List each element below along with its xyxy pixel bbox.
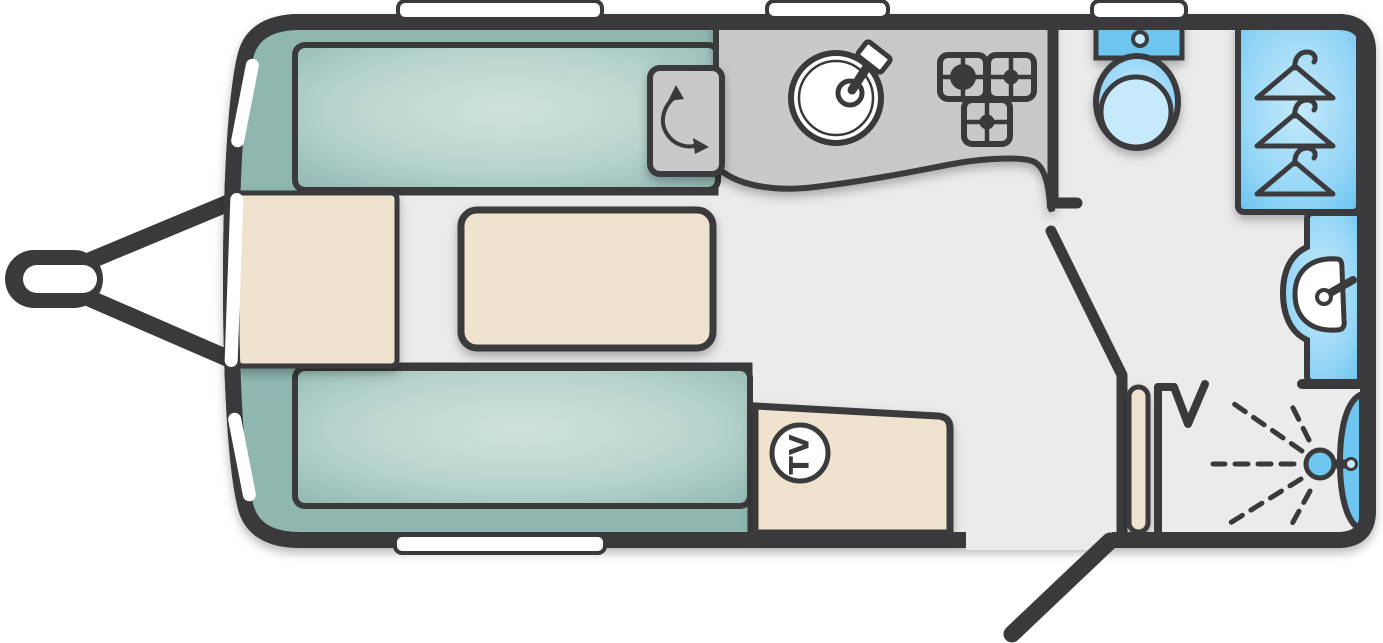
hitch-coupling-slot bbox=[23, 265, 97, 293]
window bbox=[395, 535, 605, 553]
entrance-door bbox=[945, 530, 1112, 634]
front-chest bbox=[237, 193, 397, 366]
worktop-flap bbox=[650, 68, 722, 174]
doorway-opening bbox=[966, 530, 1112, 550]
occasional-table bbox=[461, 210, 713, 348]
tow-hitch bbox=[5, 194, 250, 368]
shower-head bbox=[1306, 450, 1334, 478]
window bbox=[767, 1, 888, 18]
tv-cabinet: TV bbox=[755, 406, 950, 533]
wardrobe bbox=[1238, 20, 1359, 212]
window bbox=[398, 1, 602, 19]
caravan-floor-plan: TV bbox=[0, 0, 1383, 643]
toilet-icon bbox=[1096, 20, 1182, 148]
washroom-door-panel bbox=[1129, 387, 1148, 532]
front-bench-bottom-cushion bbox=[295, 368, 750, 506]
open-door-leaf bbox=[1012, 541, 1110, 634]
floor-plan-svg: TV bbox=[0, 0, 1383, 643]
window bbox=[1092, 1, 1186, 19]
tv-badge: TV bbox=[785, 433, 816, 474]
